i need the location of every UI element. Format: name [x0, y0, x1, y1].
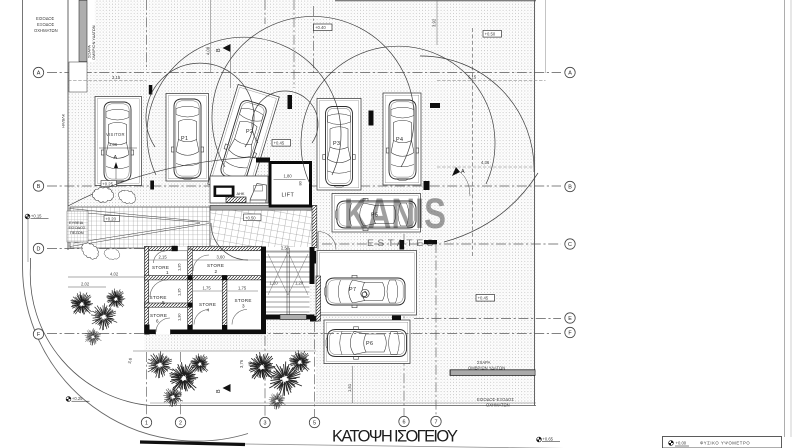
svg-text:2: 2: [215, 269, 218, 274]
svg-text:3,06: 3,06: [109, 142, 118, 147]
svg-text:4,08: 4,08: [206, 46, 211, 55]
svg-text:2,02: 2,02: [81, 282, 90, 287]
svg-text:5: 5: [162, 300, 165, 305]
svg-text:+0.25: +0.25: [72, 396, 83, 401]
svg-text:+0.00: +0.00: [676, 441, 687, 446]
svg-text:1: 1: [166, 270, 169, 275]
svg-text:STORE: STORE: [207, 263, 224, 268]
svg-text:1,20: 1,20: [295, 281, 304, 286]
svg-text:3,15: 3,15: [112, 75, 121, 80]
svg-text:2: 2: [179, 420, 182, 426]
svg-text:1,35: 1,35: [177, 288, 182, 296]
svg-text:ΗΛ/ΒΛΚ: ΗΛ/ΒΛΚ: [61, 113, 66, 128]
svg-text:+0.50: +0.50: [245, 215, 256, 220]
svg-text:1,80: 1,80: [284, 174, 293, 179]
svg-text:4,36: 4,36: [481, 160, 490, 165]
svg-text:1,61: 1,61: [347, 383, 352, 392]
svg-text:6: 6: [156, 319, 159, 324]
svg-text:5,15: 5,15: [468, 75, 477, 80]
svg-text:ΟΧΗΜΑΤΩΝ: ΟΧΗΜΑΤΩΝ: [34, 28, 58, 33]
svg-text:5: 5: [313, 420, 316, 426]
svg-text:A: A: [114, 155, 118, 161]
svg-text:A: A: [37, 70, 41, 76]
svg-text:+0.45: +0.45: [274, 141, 285, 146]
svg-text:3: 3: [264, 420, 267, 426]
svg-text:STORE: STORE: [150, 313, 167, 318]
svg-text:+0.40: +0.40: [315, 25, 326, 30]
svg-text:1,75: 1,75: [203, 286, 212, 291]
svg-text:3,92: 3,92: [432, 18, 437, 27]
svg-text:+0.45: +0.45: [478, 296, 489, 301]
svg-text:A: A: [568, 70, 572, 76]
svg-text:1,75: 1,75: [238, 286, 247, 291]
svg-text:ΕΞΟΔΟΣ: ΕΞΟΔΟΣ: [37, 22, 55, 27]
svg-text:LIFT: LIFT: [282, 193, 295, 199]
svg-text:4: 4: [207, 308, 210, 313]
svg-text:3: 3: [242, 304, 245, 309]
svg-text:A: A: [461, 169, 465, 175]
svg-text:1,35: 1,35: [177, 263, 182, 271]
svg-text:ESTATES: ESTATES: [367, 238, 437, 248]
svg-text:1: 1: [145, 420, 148, 426]
svg-text:3,76: 3,76: [239, 359, 244, 368]
svg-text:6: 6: [403, 419, 406, 425]
svg-text:ΟΧΗΜΑΤΩΝ: ΟΧΗΜΑΤΩΝ: [486, 403, 510, 408]
svg-text:STORE: STORE: [199, 302, 216, 307]
svg-text:P4: P4: [396, 137, 403, 143]
svg-text:ΣΧΑΡΑ: ΣΧΑΡΑ: [477, 360, 491, 365]
svg-text:2,50: 2,50: [281, 246, 290, 251]
svg-text:D: D: [37, 246, 41, 252]
svg-text:P6: P6: [366, 341, 373, 347]
svg-text:3,60: 3,60: [217, 255, 226, 260]
svg-text:ΠΕΖΩΝ: ΠΕΖΩΝ: [70, 230, 84, 235]
svg-text:B: B: [568, 184, 572, 190]
svg-text:7: 7: [435, 419, 438, 425]
svg-text:+0.50: +0.50: [485, 32, 496, 37]
svg-text:ΕΙΣΟΔΟΣ: ΕΙΣΟΔΟΣ: [36, 16, 55, 21]
svg-text:P7: P7: [349, 287, 356, 293]
svg-text:VISITOR: VISITOR: [106, 132, 125, 137]
svg-text:B: B: [37, 184, 41, 190]
svg-text:+0.15: +0.15: [31, 213, 42, 218]
svg-text:1,30: 1,30: [177, 313, 182, 321]
svg-text:B: B: [216, 48, 222, 52]
svg-text:ΑΗΚ: ΑΗΚ: [237, 191, 245, 196]
svg-text:STORE: STORE: [235, 298, 252, 303]
svg-text:KANIS: KANIS: [344, 190, 446, 238]
svg-text:ΕΙΣΟΔΟΣ-ΕΞΟΔΟΣ: ΕΙΣΟΔΟΣ-ΕΞΟΔΟΣ: [477, 397, 514, 402]
svg-text:+0.20: +0.20: [105, 216, 116, 221]
svg-text:2,15: 2,15: [159, 255, 168, 260]
svg-text:P1: P1: [181, 136, 188, 142]
svg-text:E: E: [568, 316, 572, 322]
svg-text:ΦΥΣΙΚΟ ΥΨΟΜΕΤΡΟ: ΦΥΣΙΚΟ ΥΨΟΜΕΤΡΟ: [700, 441, 750, 446]
svg-text:C: C: [568, 242, 572, 248]
svg-text:1,20: 1,20: [270, 281, 279, 286]
svg-text:P3: P3: [333, 141, 340, 147]
svg-text:ΚΑΤΟΨΗ ΙΣΟΓΕΙΟΥ: ΚΑΤΟΨΗ ΙΣΟΓΕΙΟΥ: [332, 428, 458, 446]
svg-text:ΟΜΒΡΙΟΝ ΥΔΑΤΩΝ: ΟΜΒΡΙΟΝ ΥΔΑΤΩΝ: [91, 25, 96, 60]
svg-text:+0.65: +0.65: [542, 436, 553, 441]
svg-text:B: B: [216, 389, 222, 393]
svg-text:4,02: 4,02: [110, 272, 119, 277]
